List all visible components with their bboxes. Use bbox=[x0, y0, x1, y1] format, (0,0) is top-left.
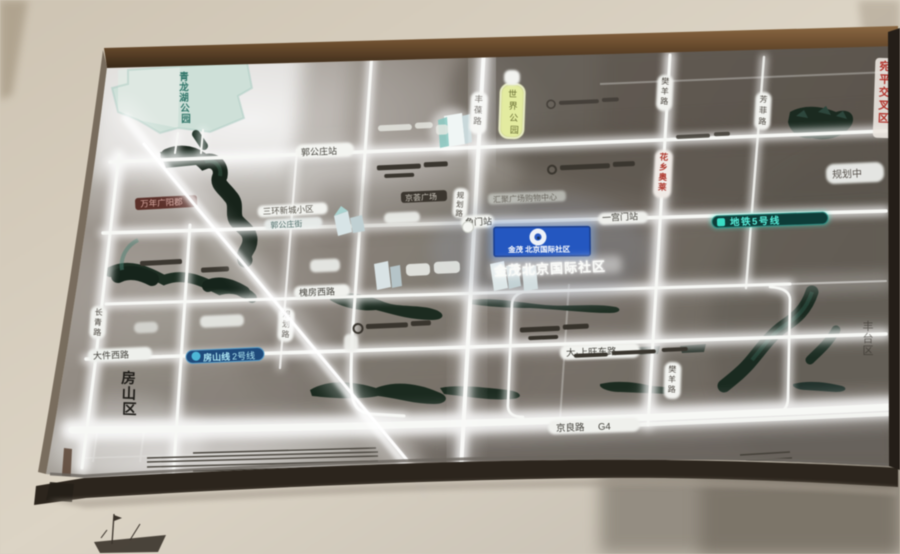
svg-text:芳菲路: 芳菲路 bbox=[758, 94, 768, 126]
svg-text:京良路: 京良路 bbox=[556, 421, 585, 434]
svg-text:大·上旺东路: 大·上旺东路 bbox=[566, 345, 618, 359]
svg-text:规划中: 规划中 bbox=[832, 167, 863, 181]
svg-text:樊羊路: 樊羊路 bbox=[668, 364, 677, 394]
svg-text:2号线: 2号线 bbox=[232, 350, 255, 362]
svg-text:房山线: 房山线 bbox=[203, 351, 230, 363]
svg-text:丰台区: 丰台区 bbox=[863, 320, 874, 357]
svg-text:京荟广场: 京荟广场 bbox=[405, 191, 437, 202]
svg-text:樊羊路: 樊羊路 bbox=[660, 76, 670, 106]
svg-text:地铁5号线: 地铁5号线 bbox=[730, 215, 781, 229]
svg-text:房山区: 房山区 bbox=[120, 369, 139, 419]
svg-text:G4: G4 bbox=[598, 421, 611, 432]
svg-text:槐房西路: 槐房西路 bbox=[299, 285, 335, 298]
svg-text:一宫门站: 一宫门站 bbox=[602, 210, 638, 223]
svg-text:郭公庄站: 郭公庄站 bbox=[301, 145, 337, 158]
svg-text:大件西路: 大件西路 bbox=[93, 349, 129, 362]
svg-text:郭公庄街: 郭公庄街 bbox=[270, 218, 302, 230]
svg-text:金茂 北京国际社区: 金茂 北京国际社区 bbox=[507, 244, 571, 255]
